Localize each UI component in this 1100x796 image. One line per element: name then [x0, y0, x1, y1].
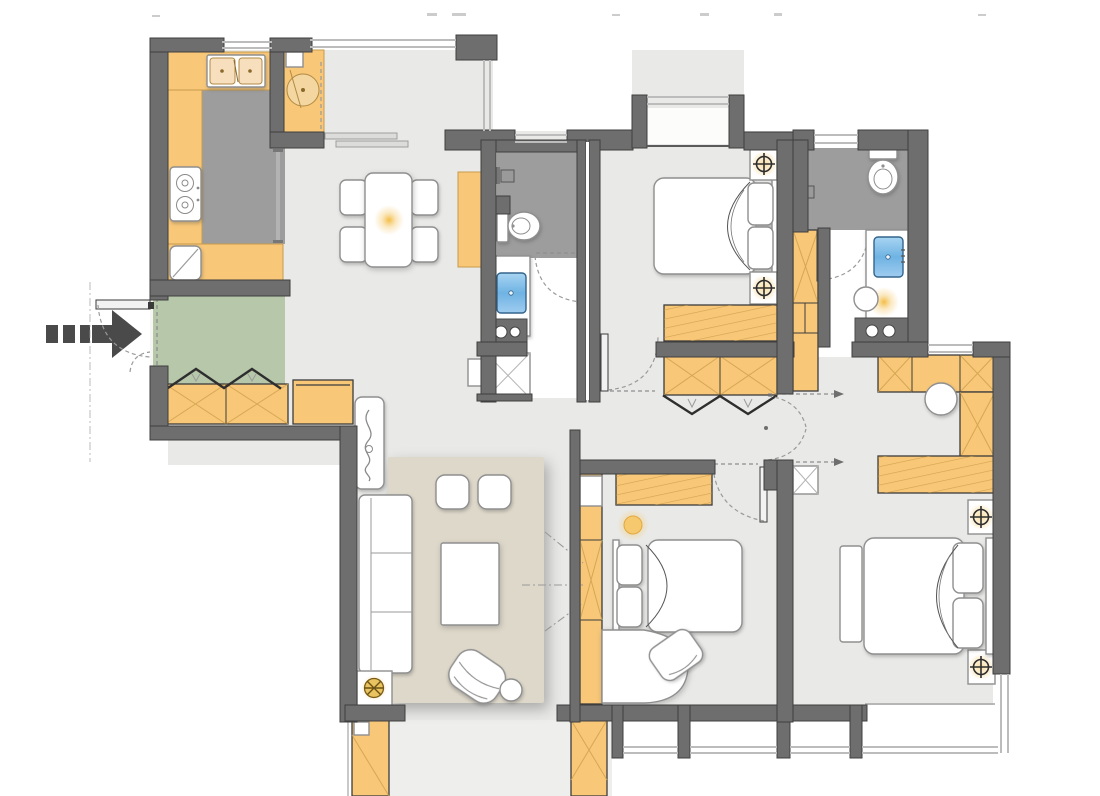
floor-plan-canvas [0, 0, 1100, 796]
pillow [617, 545, 642, 585]
balcony-cabinet-right [571, 720, 607, 796]
pillow [617, 587, 642, 627]
bay-window-recess [645, 108, 730, 148]
sofa [359, 495, 412, 673]
floor-lamp-icon [361, 675, 387, 701]
toilet-icon [868, 149, 898, 194]
storage-box [793, 466, 818, 494]
outside-pocket-1 [493, 50, 632, 131]
master-dresser [878, 456, 995, 493]
shoe-cabinets [165, 380, 353, 424]
bathroom-2-window [814, 135, 858, 143]
kitchen-corner-appliance [170, 246, 201, 280]
entry-mat [153, 295, 285, 387]
chair [340, 180, 367, 215]
outside-pocket-2 [744, 50, 928, 131]
dining-bay-window [310, 40, 456, 47]
master-desk-column [960, 392, 995, 458]
stove-icon [170, 167, 201, 221]
dining-ceiling-glow [374, 205, 404, 235]
ottoman [478, 475, 511, 509]
floor-lamp [357, 671, 392, 706]
kitchen-window [222, 42, 272, 48]
bedroom-2-dresser [616, 472, 712, 505]
vanity-2 [866, 230, 908, 328]
floor-plan-drawing [0, 0, 1100, 796]
mattress [648, 540, 742, 632]
coffee-table [441, 543, 499, 625]
ceiling-lamp-icon [751, 151, 777, 177]
survey-ticks [152, 13, 986, 17]
pantry-basin-drain [301, 88, 305, 92]
shelf-1 [325, 133, 397, 139]
bedroom-1-dresser [664, 305, 777, 341]
master-top-window [928, 345, 973, 352]
partition-end-bottom [273, 240, 283, 243]
tall-wardrobe-column [793, 230, 818, 391]
partition-end-top [273, 149, 283, 152]
side-ball-table [500, 679, 522, 701]
dining-sideboard [458, 172, 481, 267]
ceiling-lamp-icon [968, 654, 994, 680]
pantry-box [286, 52, 303, 67]
toilet-icon [497, 210, 540, 242]
ceiling-lamp-icon [624, 516, 642, 534]
wardrobe-column [580, 474, 602, 704]
entry-door-hinge [148, 302, 154, 309]
desk-chair [925, 383, 957, 415]
pillow [953, 543, 983, 593]
bedroom-1-door-leaf [601, 334, 608, 391]
shelf-2 [336, 141, 408, 147]
shoe-cabinet-b [293, 380, 353, 424]
wardrobe-top-box [580, 476, 602, 506]
outside-pocket-3 [928, 50, 1010, 342]
bench [840, 546, 862, 642]
ceiling-lamp-icon [751, 275, 777, 301]
ceiling-lamp-icon [968, 504, 994, 530]
chair [411, 227, 438, 262]
ottoman [436, 475, 469, 509]
kitchen-sliding-partition [276, 150, 280, 242]
balcony-box [354, 722, 369, 735]
plant-panel [355, 397, 384, 489]
chair [411, 180, 438, 215]
entrance-arrow-icon [46, 310, 142, 358]
washing-machine-2-icon [855, 318, 909, 345]
entry-door-leaf [96, 300, 150, 309]
pillow [953, 598, 983, 648]
master-corner-window [1001, 674, 1008, 753]
pillow [748, 227, 773, 269]
towel-rail-icon [494, 167, 514, 184]
bath-stool [854, 287, 878, 311]
kitchen-sink-icon [207, 55, 265, 87]
pillow [748, 183, 773, 225]
chair [340, 227, 367, 262]
